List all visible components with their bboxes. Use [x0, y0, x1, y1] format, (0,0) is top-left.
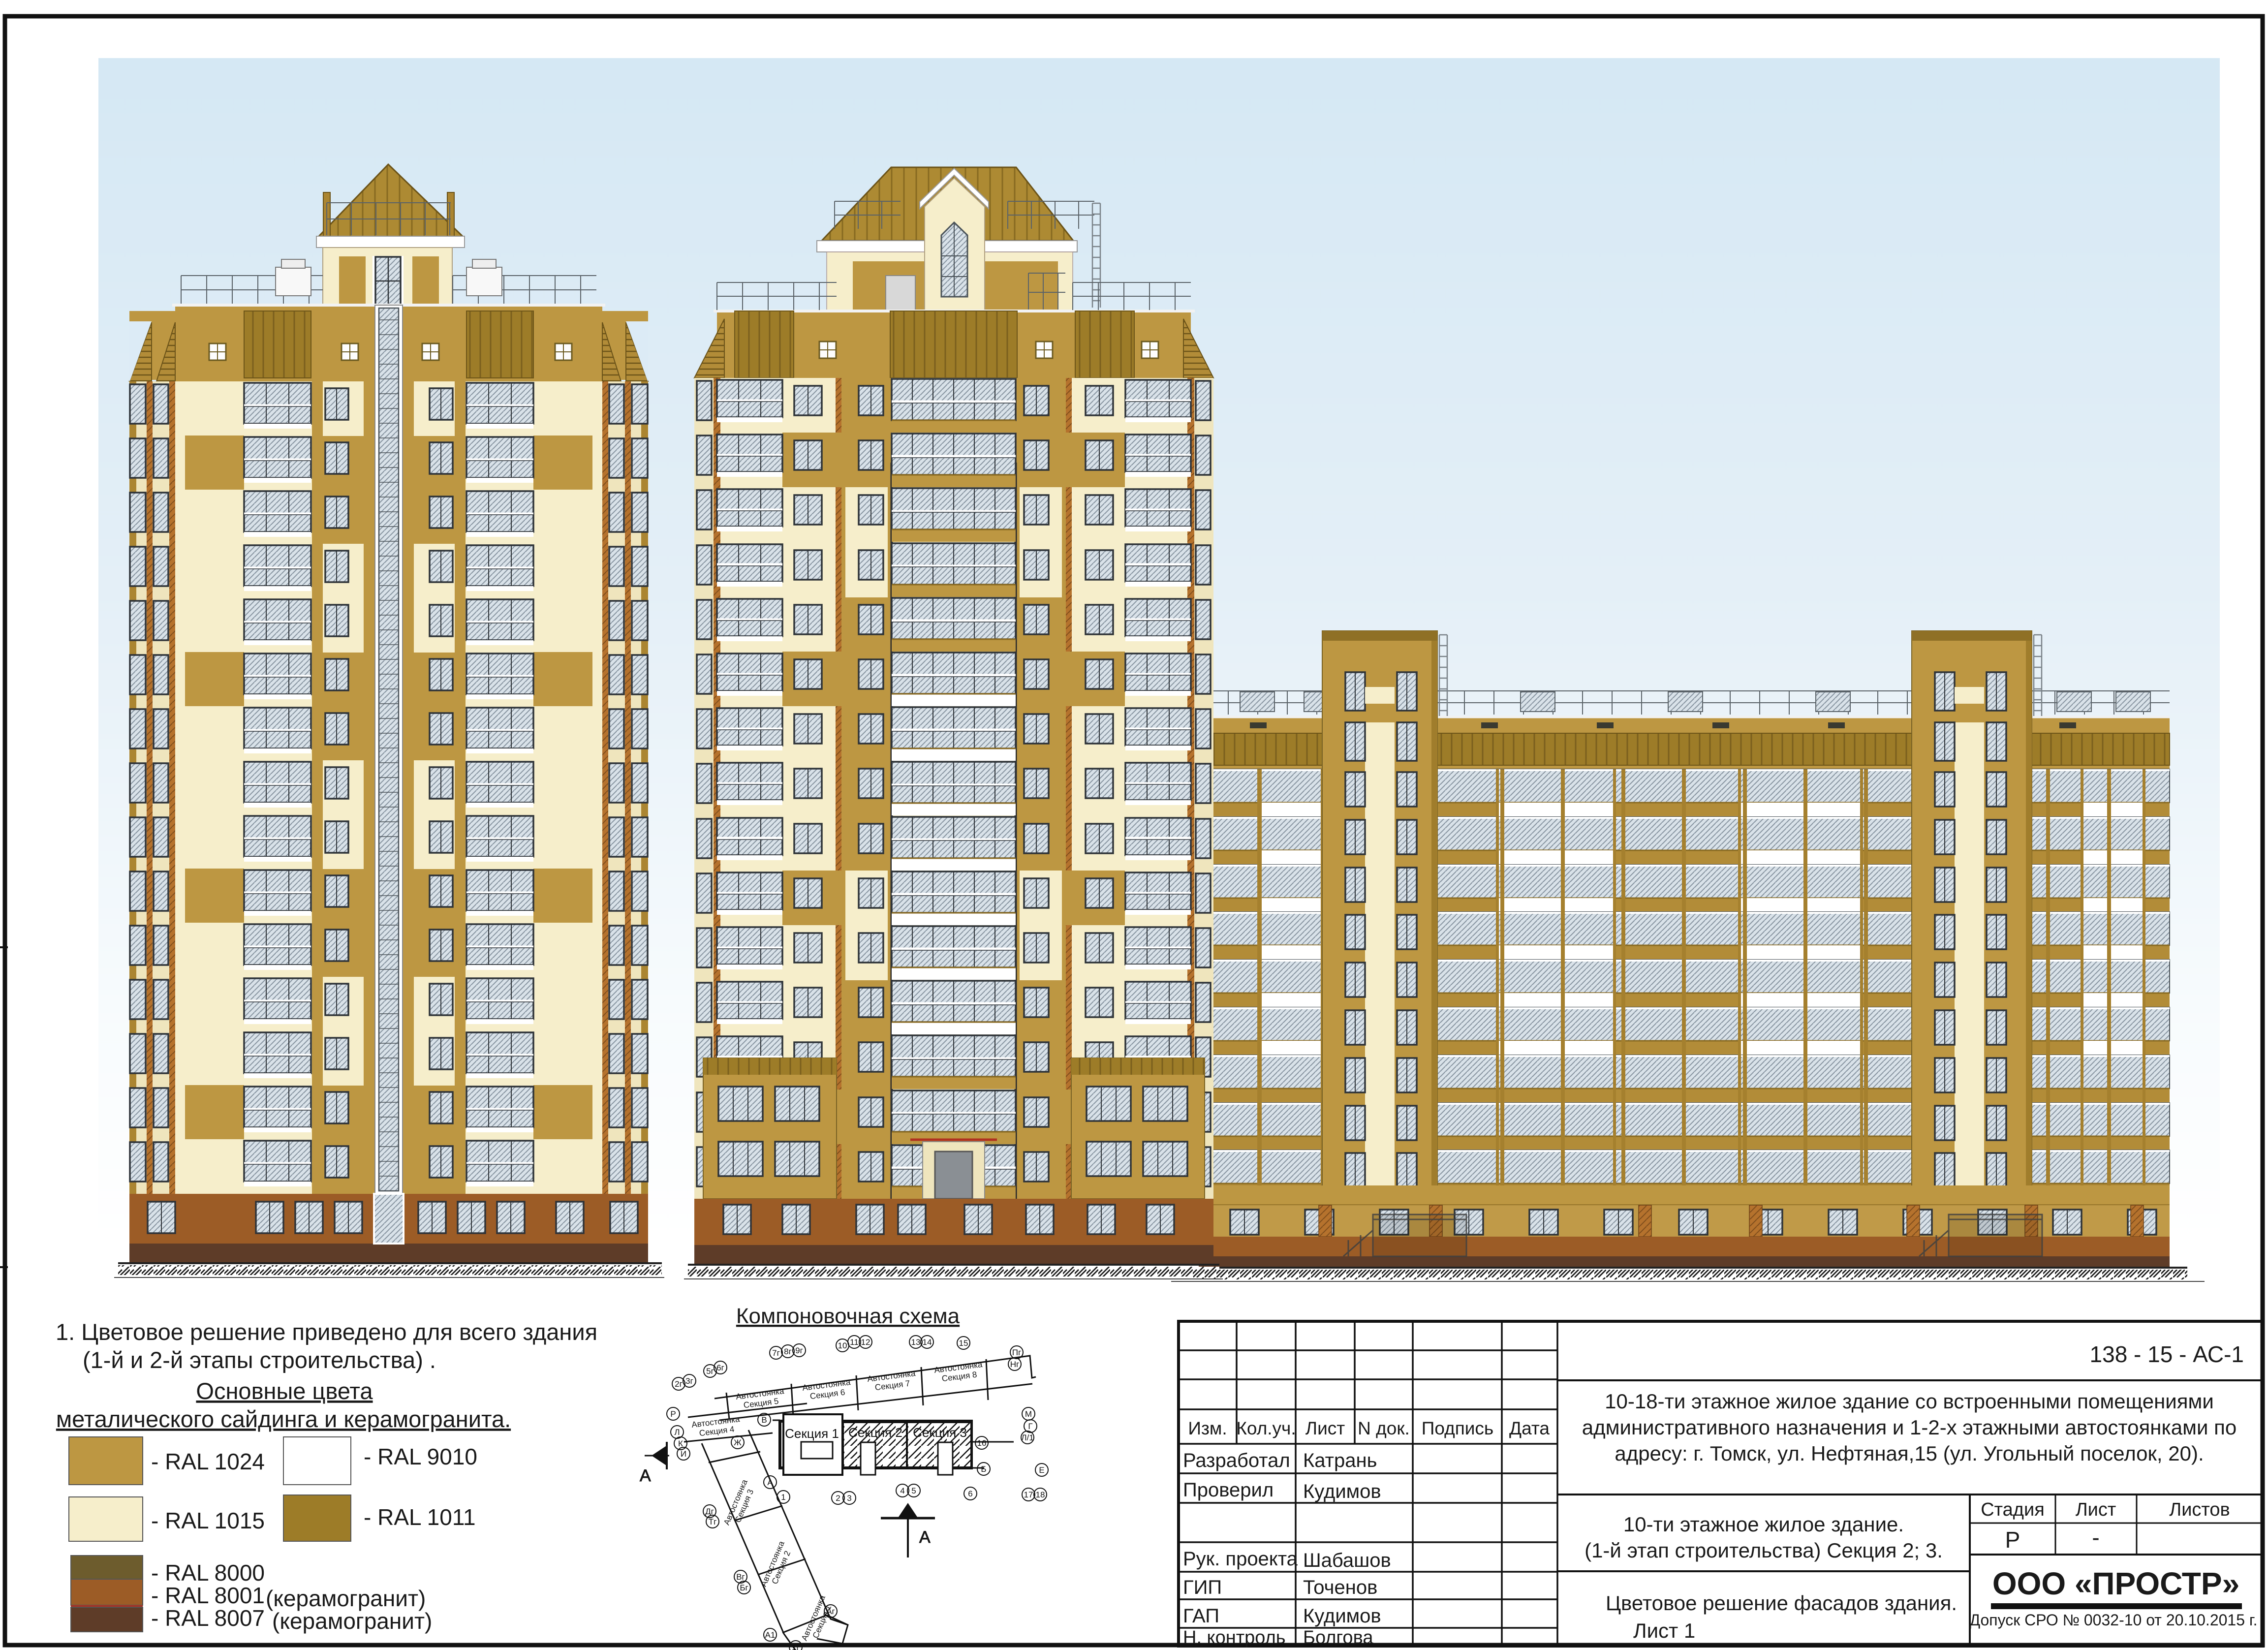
svg-text:10: 10: [838, 1341, 847, 1350]
svg-text:А: А: [640, 1466, 651, 1485]
svg-text:Бг: Бг: [740, 1583, 748, 1592]
svg-text:(1-й этап строительства) Секци: (1-й этап строительства) Секция 2; 3.: [1584, 1539, 1943, 1562]
svg-text:Е: Е: [1039, 1465, 1044, 1475]
svg-text:Точенов: Точенов: [1303, 1577, 1377, 1598]
svg-text:Изм.: Изм.: [1188, 1418, 1227, 1438]
svg-text:- RAL 1011: - RAL 1011: [364, 1504, 476, 1530]
svg-text:Б: Б: [981, 1464, 986, 1474]
svg-text:Аг: Аг: [826, 1607, 835, 1616]
svg-text:Катрань: Катрань: [1303, 1450, 1377, 1471]
svg-text:5г: 5г: [706, 1367, 714, 1376]
svg-text:- RAL 8001: - RAL 8001: [151, 1583, 265, 1608]
svg-text:(керамогранит): (керамогранит): [272, 1608, 432, 1634]
svg-text:металического сайдинга и керам: металического сайдинга и керамогранита.: [56, 1406, 511, 1432]
svg-text:- RAL 8000: - RAL 8000: [151, 1560, 265, 1586]
svg-text:Вг: Вг: [736, 1572, 745, 1582]
svg-text:16: 16: [977, 1438, 987, 1448]
svg-text:Л/1: Л/1: [1021, 1433, 1033, 1442]
svg-text:- RAL 1015: - RAL 1015: [151, 1508, 265, 1533]
svg-text:10-ти этажное жилое здание.: 10-ти этажное жилое здание.: [1623, 1513, 1904, 1536]
svg-text:3: 3: [847, 1494, 851, 1503]
svg-text:11: 11: [850, 1338, 859, 1347]
svg-text:1: 1: [781, 1493, 785, 1502]
svg-text:Нг: Нг: [1010, 1360, 1019, 1369]
svg-text:(1-й и 2-й этапы строительства: (1-й и 2-й этапы строительства) .: [83, 1347, 436, 1373]
svg-text:13: 13: [911, 1338, 921, 1347]
svg-text:Лист: Лист: [1305, 1418, 1345, 1438]
svg-text:Компоновочная схема: Компоновочная схема: [736, 1304, 960, 1328]
svg-text:Листов: Листов: [2169, 1499, 2230, 1520]
svg-text:Р: Р: [2005, 1527, 2020, 1553]
svg-text:Стадия: Стадия: [1981, 1499, 2045, 1520]
svg-text:К: К: [678, 1439, 683, 1448]
svg-text:- RAL 9010: - RAL 9010: [364, 1444, 477, 1469]
svg-text:Ж: Ж: [734, 1438, 742, 1447]
svg-text:ГИП: ГИП: [1183, 1577, 1222, 1598]
svg-text:Л: Л: [674, 1428, 680, 1437]
svg-text:Кудимов: Кудимов: [1303, 1481, 1381, 1502]
svg-text:-: -: [2092, 1525, 2099, 1550]
svg-text:6г: 6г: [716, 1363, 724, 1372]
svg-text:12: 12: [861, 1338, 870, 1347]
svg-text:Секция 2: Секция 2: [848, 1425, 902, 1440]
svg-text:Р: Р: [670, 1409, 676, 1419]
svg-text:М: М: [1025, 1409, 1032, 1419]
svg-text:Кудимов: Кудимов: [1303, 1605, 1381, 1627]
svg-text:15: 15: [959, 1339, 968, 1348]
svg-text:Болгова: Болгова: [1303, 1627, 1373, 1648]
svg-text:5: 5: [911, 1486, 916, 1495]
svg-text:3г: 3г: [685, 1376, 693, 1386]
svg-text:7г: 7г: [772, 1348, 780, 1358]
svg-text:Секция 3: Секция 3: [913, 1425, 967, 1440]
svg-text:Кол.уч.: Кол.уч.: [1236, 1418, 1296, 1438]
svg-text:6: 6: [968, 1489, 972, 1498]
svg-text:Рук. проекта: Рук. проекта: [1183, 1548, 1298, 1570]
svg-text:Основные цвета: Основные цвета: [196, 1378, 373, 1404]
svg-text:14: 14: [923, 1338, 932, 1347]
svg-text:17: 17: [1024, 1490, 1033, 1499]
svg-text:N док.: N док.: [1358, 1418, 1410, 1438]
svg-text:2г: 2г: [675, 1379, 683, 1389]
svg-text:4: 4: [900, 1486, 904, 1495]
svg-text:Проверил: Проверил: [1183, 1479, 1274, 1501]
svg-text:административного назначения и: административного назначения и 1-2-х эта…: [1582, 1416, 2237, 1439]
svg-text:- RAL 1024: - RAL 1024: [151, 1449, 265, 1474]
svg-text:Дата: Дата: [1509, 1418, 1550, 1438]
svg-text:(керамогранит): (керамогранит): [266, 1586, 426, 1611]
svg-text:Г: Г: [1028, 1422, 1032, 1431]
svg-text:Лист: Лист: [2076, 1499, 2116, 1520]
svg-text:ООО «ПРОСТР»: ООО «ПРОСТР»: [1992, 1566, 2239, 1601]
svg-text:А1: А1: [765, 1630, 776, 1640]
svg-text:ГАП: ГАП: [1183, 1605, 1219, 1627]
svg-text:А: А: [919, 1528, 931, 1547]
svg-text:Подпись: Подпись: [1422, 1418, 1493, 1438]
svg-text:Тг: Тг: [709, 1517, 717, 1526]
svg-text:- RAL 8007: - RAL 8007: [151, 1605, 265, 1631]
svg-text:Пг: Пг: [1012, 1348, 1021, 1357]
svg-text:Секция 1: Секция 1: [785, 1426, 839, 1441]
svg-text:2: 2: [836, 1494, 840, 1503]
svg-text:Шабашов: Шабашов: [1303, 1550, 1391, 1571]
svg-text:8г: 8г: [784, 1347, 792, 1356]
svg-text:138 - 15 - АС-1: 138 - 15 - АС-1: [2090, 1341, 2244, 1367]
svg-text:Н. контроль: Н. контроль: [1183, 1627, 1286, 1648]
svg-text:А: А: [767, 1478, 773, 1487]
svg-text:И: И: [681, 1449, 686, 1459]
svg-text:Цветовое решение фасадов здани: Цветовое решение фасадов здания.: [1606, 1591, 1957, 1615]
svg-text:Разработал: Разработал: [1183, 1450, 1290, 1471]
svg-text:Лист 1: Лист 1: [1633, 1619, 1695, 1642]
svg-text:Допуск СРО № 0032-10 от 20.10.: Допуск СРО № 0032-10 от 20.10.2015 г.: [1969, 1611, 2257, 1629]
svg-text:9г: 9г: [795, 1346, 803, 1355]
svg-text:адресу: г. Томск, ул. Нефтяная: адресу: г. Томск, ул. Нефтяная,15 (ул. У…: [1615, 1442, 2204, 1465]
svg-text:В: В: [761, 1415, 767, 1425]
svg-text:1г: 1г: [792, 1643, 800, 1650]
svg-text:18: 18: [1036, 1490, 1045, 1499]
svg-text:1. Цветовое решение приведено: 1. Цветовое решение приведено для всего …: [56, 1319, 597, 1345]
svg-text:10-18-ти этажное жилое здание: 10-18-ти этажное жилое здание со встроен…: [1605, 1390, 2214, 1413]
